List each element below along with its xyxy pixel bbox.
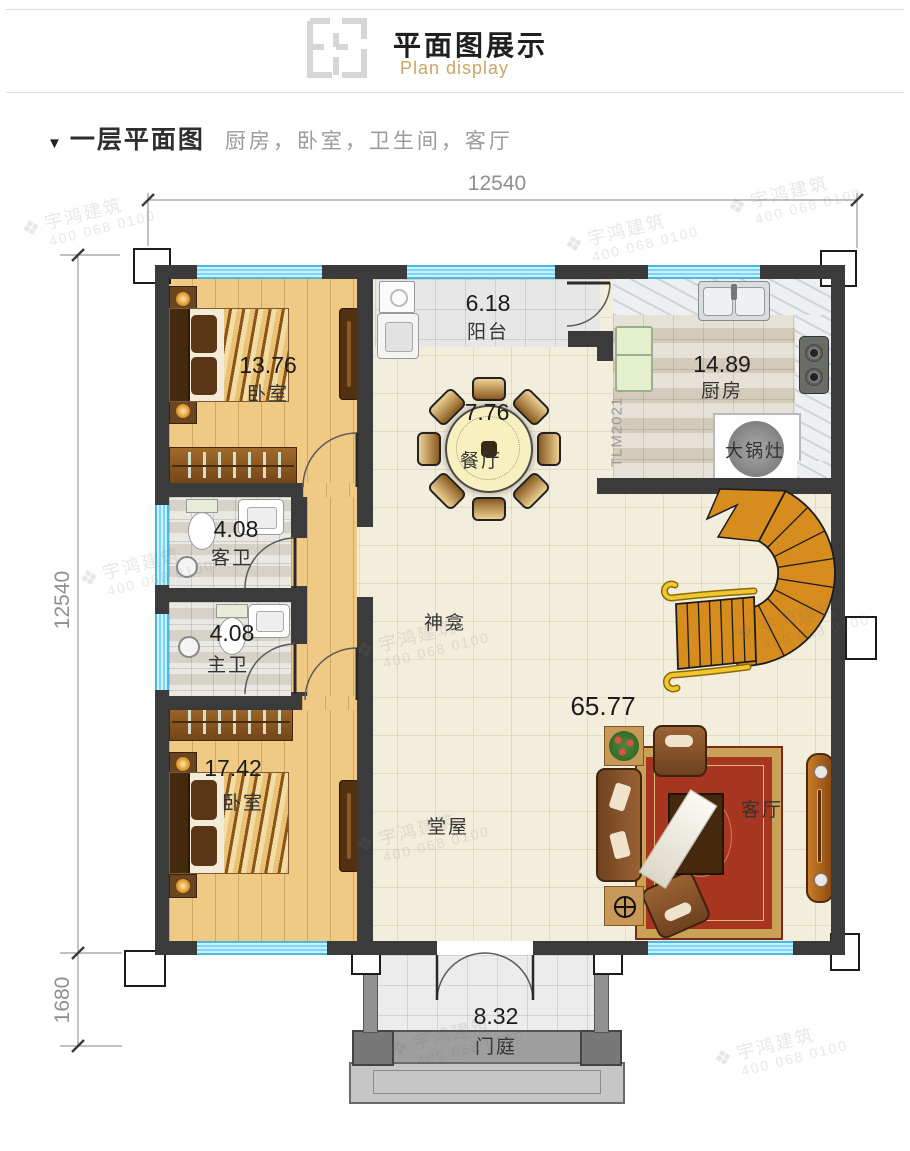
floor-plan-page: 平面图展示 Plan display ▼ 一层平面图 厨房，卧室，卫生间，客厅 … (0, 0, 910, 1151)
hall-label: 堂屋 (427, 812, 469, 839)
dim-top: 12540 (468, 172, 526, 196)
window-left-master-bath (155, 614, 169, 690)
wall-bedroom2-top (155, 696, 302, 710)
dresser-handle (347, 793, 351, 859)
side-table (604, 886, 644, 926)
model-code: TLM2021 (609, 397, 626, 467)
balcony-area: 6.18 (466, 290, 511, 317)
burner-icon (805, 344, 823, 362)
header-bottom-rule (6, 92, 904, 93)
pillow (191, 315, 217, 353)
wall-kitchen-bottom (597, 478, 831, 494)
door-gap-bedroom1 (303, 483, 357, 497)
balcony-sink (377, 313, 419, 359)
dresser (339, 780, 359, 872)
kitchen-area: 14.89 (693, 351, 751, 378)
cushion (665, 735, 693, 747)
cabinet-slot (817, 789, 822, 863)
gas-stove (799, 336, 829, 394)
potted-plant-icon (609, 731, 639, 761)
porch-pier (593, 953, 623, 975)
decor-icon (614, 896, 636, 918)
dining-chair (537, 432, 561, 466)
cushion (663, 901, 693, 923)
hall-area: 65.77 (570, 691, 635, 722)
wall-corridor-stub (357, 497, 373, 527)
sink-basin (735, 287, 765, 316)
dining-chair (417, 432, 441, 466)
wall-bedroom1-bottom (155, 483, 303, 497)
burner-icon (805, 368, 823, 386)
washer-door-icon (390, 289, 408, 307)
porch-label: 门庭 (475, 1032, 517, 1059)
triangle-marker-icon: ▼ (47, 135, 62, 152)
section-title: 一层平面图 (70, 120, 205, 156)
kitchen-label: 厨房 (701, 376, 743, 403)
washing-machine (379, 281, 415, 313)
toilet-tank (216, 604, 248, 618)
bedroom2-area: 17.42 (204, 755, 262, 782)
basin (256, 611, 284, 632)
door-gap-guest-bath (291, 538, 307, 586)
wardrobe (169, 447, 297, 485)
guest-bath-label: 客卫 (211, 543, 253, 570)
page-subtitle: Plan display (400, 58, 509, 79)
floorplan-icon (302, 13, 372, 83)
dining-label: 餐厅 (460, 446, 502, 473)
watermark-logo-icon: ❖ (726, 194, 753, 233)
header-top-rule (6, 9, 904, 10)
wall-balcony-stub (568, 331, 613, 347)
wall-left (155, 265, 169, 955)
tv-cabinet (806, 753, 834, 903)
nightstand (169, 874, 197, 898)
bedroom1-area: 13.76 (239, 352, 297, 379)
shrine-label: 神龛 (424, 608, 466, 635)
shower-drain-icon (176, 556, 198, 578)
window-bottom-2 (648, 941, 793, 955)
door-gap-master-bath (291, 644, 307, 692)
dresser-handle (347, 321, 351, 387)
knob-icon (814, 873, 828, 887)
door-gap-bedroom2 (302, 696, 357, 710)
pillow (191, 826, 217, 866)
watermark: ❖宇鸿建筑400 068 0100 (726, 166, 864, 233)
master-bath-label: 主卫 (207, 650, 249, 677)
porch-step-lower (349, 1062, 625, 1104)
watermark: ❖宇鸿建筑400 068 0100 (712, 1018, 850, 1085)
fridge-divider (617, 354, 651, 356)
wall-bath-divider (155, 588, 307, 602)
balcony-label: 阳台 (467, 317, 509, 344)
window-top-3 (648, 265, 760, 279)
wall-bedroom1-right (357, 265, 373, 497)
fridge (615, 326, 653, 392)
shower-drain-icon (178, 636, 200, 658)
master-bath-area: 4.08 (210, 620, 255, 647)
sofa (596, 768, 642, 882)
cushion (608, 782, 631, 812)
lamp-icon (176, 404, 190, 418)
lamp-icon (176, 879, 190, 893)
watermark: ❖宇鸿建筑400 068 0100 (20, 188, 158, 255)
porch-column-base (580, 1030, 622, 1066)
bedroom2-label: 卧室 (222, 788, 264, 815)
watermark-logo-icon: ❖ (712, 1046, 739, 1085)
window-top-1 (197, 265, 322, 279)
side-table (604, 726, 644, 766)
guest-bath-area: 4.08 (214, 516, 259, 543)
dresser (339, 308, 359, 400)
basin (385, 322, 413, 352)
armchair (653, 725, 707, 777)
wall-bedroom2-right (357, 696, 373, 941)
bedroom1-label: 卧室 (247, 379, 289, 406)
faucet-icon (731, 284, 737, 300)
watermark-logo-icon: ❖ (78, 566, 105, 605)
lamp-icon (176, 757, 190, 771)
window-left-guest-bath (155, 505, 169, 585)
wardrobe-rod (172, 721, 290, 723)
knob-icon (814, 765, 828, 779)
kitchen-sink (698, 281, 770, 321)
porch-column-base (352, 1030, 394, 1066)
section-description: 厨房，卧室，卫生间，客厅 (225, 125, 513, 155)
porch-area: 8.32 (474, 1003, 519, 1030)
dining-chair (472, 377, 506, 401)
sink-basin (703, 287, 733, 316)
lamp-icon (176, 292, 190, 306)
wall-right (831, 265, 845, 955)
cushion (609, 830, 631, 859)
corner-column (124, 950, 166, 987)
window-bottom-1 (197, 941, 327, 955)
watermark-logo-icon: ❖ (20, 216, 47, 255)
step-inner-line (373, 1070, 601, 1094)
toilet-tank (186, 499, 218, 513)
wardrobe-rod (172, 465, 294, 467)
window-top-2 (407, 265, 555, 279)
watermark: ❖宇鸿建筑400 068 0100 (563, 204, 701, 271)
headboard (170, 309, 190, 401)
living-label: 客厅 (741, 795, 783, 822)
big-stove-label: 大锅灶 (725, 437, 785, 463)
wall-corridor-lower (357, 597, 373, 696)
dining-area: 7.76 (465, 399, 510, 426)
dining-chair (472, 497, 506, 521)
section-heading: ▼ 一层平面图 厨房，卧室，卫生间，客厅 (47, 120, 513, 156)
wall-pilaster (845, 616, 877, 660)
headboard (170, 773, 190, 873)
pillow (191, 357, 217, 395)
porch-pier (351, 953, 381, 975)
pillow (191, 780, 217, 820)
counter-corner (797, 461, 831, 478)
corridor-floor (307, 497, 357, 696)
dim-left-lower: 1680 (51, 977, 75, 1024)
dim-left: 12540 (51, 571, 75, 629)
